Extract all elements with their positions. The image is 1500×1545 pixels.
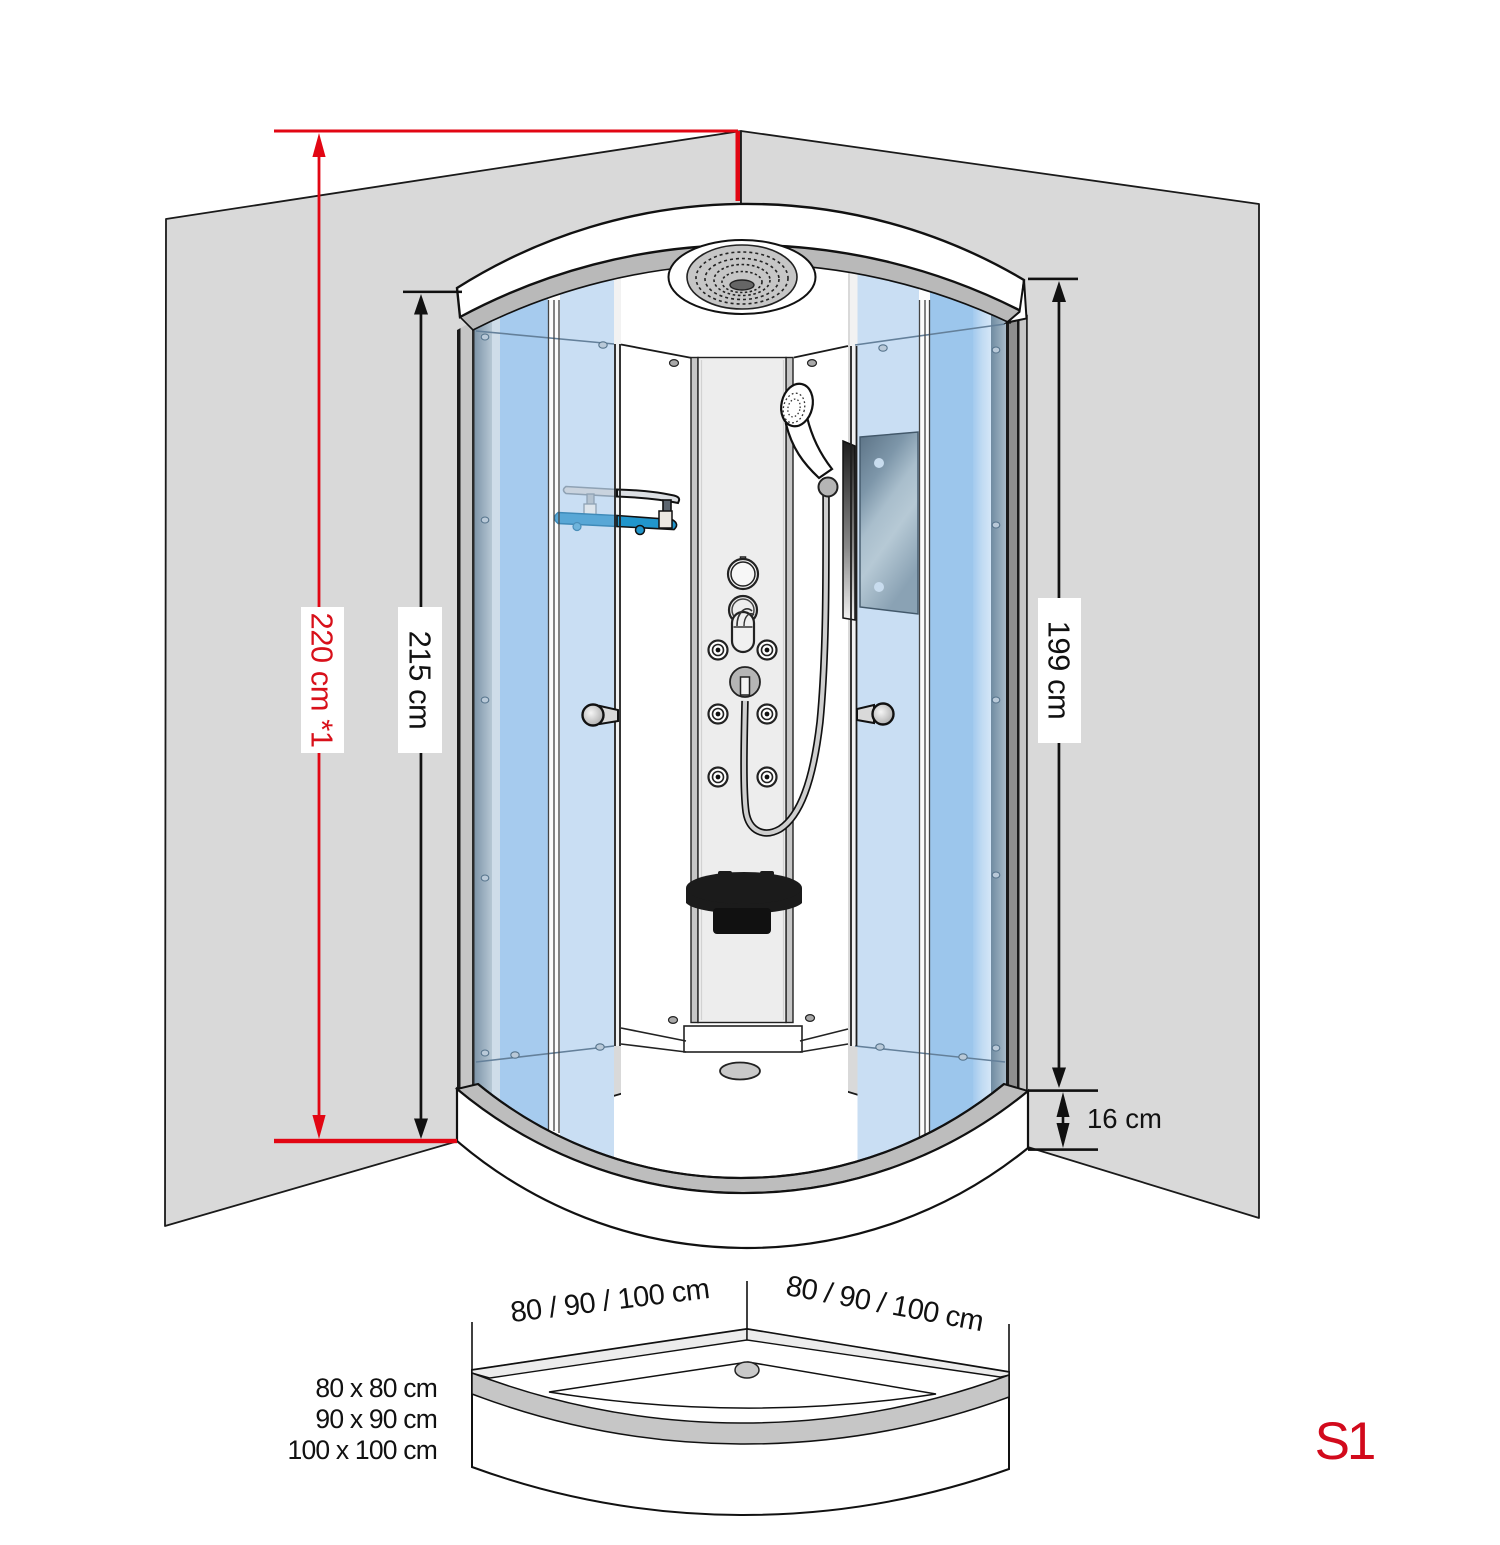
svg-text:16 cm: 16 cm — [1087, 1103, 1162, 1134]
svg-text:220 cm *1: 220 cm *1 — [305, 612, 340, 747]
svg-text:80 / 90 / 100 cm: 80 / 90 / 100 cm — [783, 1270, 985, 1338]
svg-text:90 x 90 cm: 90 x 90 cm — [315, 1404, 437, 1434]
svg-text:80 / 90 / 100 cm: 80 / 90 / 100 cm — [509, 1273, 711, 1329]
svg-text:199 cm: 199 cm — [1042, 621, 1077, 720]
svg-text:S1: S1 — [1315, 1412, 1374, 1471]
svg-text:215 cm: 215 cm — [403, 631, 438, 730]
svg-text:100 x 100 cm: 100 x 100 cm — [288, 1435, 438, 1465]
svg-text:80 x 80 cm: 80 x 80 cm — [315, 1373, 437, 1403]
